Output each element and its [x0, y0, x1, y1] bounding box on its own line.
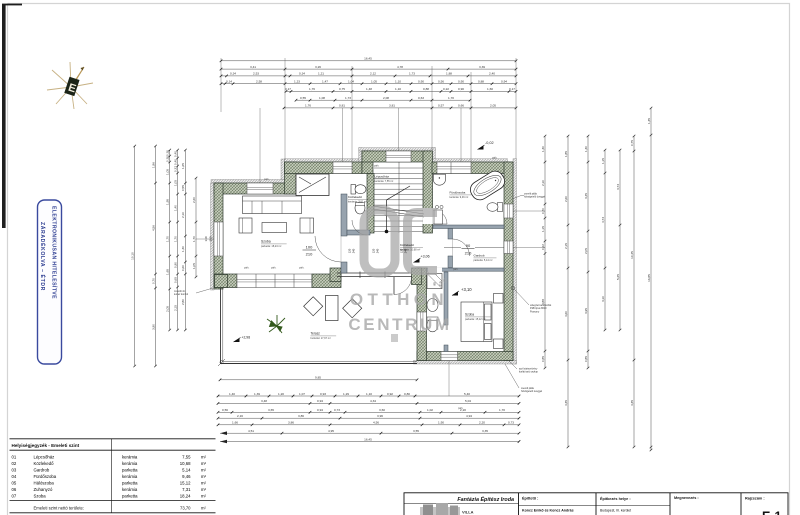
- svg-text:120: 120: [372, 248, 376, 253]
- svg-text:Hálószoba: Hálószoba: [34, 481, 55, 486]
- svg-text:16,85: 16,85: [647, 274, 651, 282]
- svg-text:1,86: 1,86: [151, 162, 155, 168]
- svg-text:0,85: 0,85: [541, 356, 545, 362]
- svg-text:CENTRUM: CENTRUM: [348, 315, 451, 334]
- svg-text:párk.: párk.: [492, 157, 498, 160]
- svg-text:0,40: 0,40: [173, 151, 177, 157]
- svg-text:0,94: 0,94: [317, 399, 323, 403]
- svg-text:1,76: 1,76: [309, 87, 315, 91]
- svg-text:1,05: 1,05: [192, 263, 196, 269]
- svg-text:1,60: 1,60: [487, 87, 493, 91]
- svg-text:4,95: 4,95: [328, 429, 334, 433]
- svg-text:2,15: 2,15: [173, 305, 177, 311]
- svg-text:2,53: 2,53: [253, 72, 259, 76]
- svg-text:m²: m²: [201, 487, 207, 492]
- svg-text:02: 02: [12, 461, 17, 466]
- svg-text:Terasz: Terasz: [311, 332, 321, 336]
- svg-text:párk.: párk.: [244, 267, 250, 270]
- svg-text:3,45: 3,45: [584, 193, 588, 199]
- svg-text:05: 05: [12, 481, 17, 486]
- svg-text:4,56: 4,56: [373, 421, 379, 425]
- svg-text:1,73: 1,73: [409, 72, 415, 76]
- svg-text:10,10: 10,10: [131, 252, 135, 260]
- svg-text:16,45: 16,45: [364, 57, 372, 61]
- svg-text:kerámia: kerámia: [122, 474, 138, 479]
- svg-text:+3,10: +3,10: [461, 287, 472, 292]
- svg-text:párk.: párk.: [374, 165, 380, 168]
- svg-text:2,20: 2,20: [192, 197, 196, 203]
- svg-text:Szoba: Szoba: [465, 313, 474, 317]
- svg-text:1,65: 1,65: [166, 269, 170, 275]
- svg-text:3,60: 3,60: [379, 408, 385, 412]
- svg-text:3,48: 3,48: [261, 399, 267, 403]
- svg-text:1,95: 1,95: [166, 199, 170, 205]
- svg-text:m²: m²: [201, 506, 206, 511]
- svg-text:m²: m²: [201, 467, 207, 472]
- svg-text:0,60: 0,60: [181, 265, 185, 271]
- svg-text:Emeleti szint nettó területe:: Emeleti szint nettó területe:: [34, 506, 85, 511]
- svg-text:1,40: 1,40: [229, 392, 235, 396]
- svg-text:Építtető :: Építtető :: [522, 495, 538, 500]
- svg-text:Helyiségjegyzék - Emeleti szin: Helyiségjegyzék - Emeleti szint: [12, 443, 80, 448]
- svg-text:Lépcsőház: Lépcsőház: [34, 454, 55, 459]
- svg-text:kerámia: kerámia: [122, 487, 138, 492]
- svg-text:1,05: 1,05: [371, 80, 377, 84]
- svg-text:1,04: 1,04: [348, 80, 354, 84]
- svg-text:0,65: 0,65: [173, 277, 177, 283]
- svg-text:OTTHON: OTTHON: [350, 290, 448, 309]
- svg-text:3,86: 3,86: [288, 421, 294, 425]
- svg-text:1,70: 1,70: [192, 236, 196, 242]
- svg-text:1,66: 1,66: [232, 421, 238, 425]
- svg-text:1,30: 1,30: [541, 146, 545, 152]
- svg-text:2,12: 2,12: [370, 72, 376, 76]
- svg-text:m²: m²: [201, 461, 207, 466]
- svg-text:10,68: 10,68: [180, 461, 191, 466]
- svg-text:2,58: 2,58: [256, 80, 262, 84]
- svg-text:0,57: 0,57: [438, 104, 444, 108]
- svg-text:5,25: 5,25: [616, 274, 620, 280]
- svg-text:Fürdőszoba: Fürdőszoba: [450, 191, 466, 195]
- svg-text:2,08: 2,08: [383, 96, 389, 100]
- svg-text:240: 240: [352, 248, 356, 253]
- svg-text:4,60: 4,60: [564, 311, 568, 317]
- svg-text:240: 240: [404, 248, 408, 253]
- svg-text:2,20: 2,20: [479, 421, 485, 425]
- svg-text:0,92: 0,92: [387, 392, 393, 396]
- svg-text:m²: m²: [201, 481, 207, 486]
- svg-text:párk.: párk.: [264, 178, 270, 181]
- svg-text:04: 04: [12, 474, 17, 479]
- svg-text:0,30: 0,30: [166, 156, 170, 162]
- svg-text:1,15: 1,15: [541, 226, 545, 232]
- svg-text:0,66: 0,66: [458, 104, 464, 108]
- svg-text:4,34: 4,34: [370, 399, 376, 403]
- svg-text:1,15: 1,15: [601, 158, 605, 164]
- svg-text:hőszigetelő üveggel: hőszigetelő üveggel: [524, 196, 546, 199]
- svg-text:Pozsony: Pozsony: [530, 310, 540, 313]
- svg-text:burkolat: 17,67 m²: burkolat: 17,67 m²: [311, 337, 331, 340]
- svg-text:1,05: 1,05: [166, 169, 170, 175]
- svg-text:07: 07: [12, 494, 17, 499]
- svg-text:®: ®: [443, 278, 448, 285]
- svg-text:Lépcsőház: Lépcsőház: [375, 175, 390, 179]
- svg-text:4,35: 4,35: [564, 400, 568, 406]
- svg-text:2,05: 2,05: [490, 104, 496, 108]
- svg-text:2,05: 2,05: [166, 306, 170, 312]
- svg-text:m²: m²: [201, 474, 207, 479]
- svg-text:E-1: E-1: [762, 510, 782, 515]
- svg-text:4,35: 4,35: [630, 400, 634, 406]
- svg-text:06: 06: [12, 487, 17, 492]
- svg-text:kerámia: 9,46 m²: kerámia: 9,46 m²: [450, 196, 469, 199]
- svg-text:parketta: parketta: [122, 481, 138, 486]
- svg-text:3,86: 3,86: [298, 414, 304, 418]
- svg-text:korlát tartó oszlop: korlát tartó oszlop: [519, 371, 539, 374]
- svg-text:parketta: 18,24 m²: parketta: 18,24 m²: [261, 245, 281, 248]
- svg-text:0,90: 0,90: [173, 262, 177, 268]
- svg-text:1,35: 1,35: [647, 118, 651, 124]
- svg-text:0,70: 0,70: [151, 278, 155, 284]
- svg-text:0,88: 0,88: [423, 87, 429, 91]
- svg-text:3,10: 3,10: [601, 296, 605, 302]
- svg-text:0,85: 0,85: [584, 356, 588, 362]
- svg-text:0,34: 0,34: [230, 72, 236, 76]
- svg-text:7,55: 7,55: [182, 454, 191, 459]
- svg-text:1,10: 1,10: [395, 80, 401, 84]
- svg-text:100: 100: [306, 245, 313, 250]
- svg-text:210: 210: [306, 252, 313, 257]
- svg-text:1,07: 1,07: [299, 392, 305, 396]
- svg-text:0,75: 0,75: [339, 87, 345, 91]
- svg-text:1,65: 1,65: [181, 163, 185, 169]
- svg-text:9,85: 9,85: [315, 376, 321, 380]
- svg-text:2,15: 2,15: [564, 243, 568, 249]
- svg-text:0,63: 0,63: [418, 96, 424, 100]
- svg-text:lemez konzol: lemez konzol: [174, 293, 188, 296]
- svg-text:2,80: 2,80: [181, 299, 185, 305]
- svg-text:0,17: 0,17: [509, 87, 515, 91]
- svg-text:1,48: 1,48: [366, 87, 372, 91]
- svg-text:01: 01: [12, 454, 17, 459]
- svg-text:90: 90: [466, 243, 471, 248]
- svg-text:0,37: 0,37: [173, 166, 177, 172]
- svg-text:3,39: 3,39: [479, 65, 485, 69]
- svg-text:4,51: 4,51: [248, 429, 254, 433]
- svg-text:0,62: 0,62: [541, 244, 545, 250]
- svg-text:parketta: parketta: [122, 467, 138, 472]
- svg-text:2,10: 2,10: [541, 180, 545, 186]
- svg-text:3,95: 3,95: [584, 308, 588, 314]
- svg-text:9,46: 9,46: [182, 474, 191, 479]
- svg-text:parketta: parketta: [122, 494, 138, 499]
- svg-text:4,56: 4,56: [151, 225, 155, 231]
- svg-text:120: 120: [400, 248, 404, 253]
- svg-text:1,02: 1,02: [427, 408, 433, 412]
- svg-text:5,04: 5,04: [465, 399, 471, 403]
- svg-text:0,70: 0,70: [541, 208, 545, 214]
- svg-text:1,10: 1,10: [395, 87, 401, 91]
- svg-text:03: 03: [12, 467, 17, 472]
- svg-text:210: 210: [465, 251, 472, 256]
- svg-text:Megnevezés :: Megnevezés :: [674, 496, 699, 500]
- svg-text:hőszigetelő üveggel: hőszigetelő üveggel: [521, 390, 543, 393]
- svg-text:1,30: 1,30: [584, 146, 588, 152]
- svg-text:120: 120: [348, 248, 352, 253]
- svg-text:240: 240: [376, 248, 380, 253]
- svg-text:3,96: 3,96: [377, 414, 383, 418]
- svg-text:kerámia: kerámia: [122, 454, 138, 459]
- svg-text:párk.: párk.: [453, 268, 459, 271]
- svg-text:210: 210: [439, 281, 443, 286]
- svg-text:1,76: 1,76: [305, 104, 311, 108]
- svg-text:1,08: 1,08: [319, 96, 325, 100]
- svg-text:2,16: 2,16: [237, 414, 243, 418]
- svg-text:+2,98: +2,98: [242, 336, 251, 340]
- svg-text:3,41: 3,41: [250, 65, 256, 69]
- svg-text:0,56: 0,56: [438, 80, 444, 84]
- svg-text:16,45: 16,45: [364, 437, 372, 441]
- svg-text:0,75: 0,75: [630, 140, 634, 146]
- svg-text:0,14: 0,14: [226, 80, 232, 84]
- svg-text:1,21: 1,21: [318, 72, 324, 76]
- svg-text:73,70: 73,70: [180, 506, 191, 511]
- svg-text:parketta: 5,14 m²: parketta: 5,14 m²: [474, 259, 493, 262]
- svg-text:Budapest, III. kerület: Budapest, III. kerület: [600, 509, 631, 513]
- svg-text:0,56: 0,56: [222, 408, 228, 412]
- svg-text:+3,06: +3,06: [421, 255, 430, 259]
- svg-text:Fantázia Építész Iroda: Fantázia Építész Iroda: [457, 495, 514, 503]
- svg-text:0,30: 0,30: [166, 150, 170, 156]
- svg-text:7,31: 7,31: [182, 487, 191, 492]
- svg-text:5,40: 5,40: [464, 392, 470, 396]
- svg-text:kerámia: 7,31 m²: kerámia: 7,31 m²: [348, 201, 367, 204]
- svg-text:0,22: 0,22: [443, 87, 449, 91]
- svg-text:m²: m²: [201, 454, 207, 459]
- svg-text:0,55: 0,55: [300, 96, 306, 100]
- svg-text:párk.: párk.: [271, 267, 277, 270]
- svg-text:1,10: 1,10: [366, 392, 372, 396]
- svg-text:0,73: 0,73: [334, 408, 340, 412]
- svg-text:1,23: 1,23: [294, 80, 300, 84]
- svg-text:4,94: 4,94: [466, 414, 472, 418]
- svg-text:2,40: 2,40: [489, 72, 495, 76]
- svg-text:3,90: 3,90: [151, 324, 155, 330]
- svg-text:0,34: 0,34: [299, 72, 305, 76]
- svg-text:3,65: 3,65: [268, 408, 274, 412]
- svg-text:Fürdőszoba: Fürdőszoba: [34, 474, 57, 479]
- svg-text:1,70: 1,70: [499, 408, 505, 412]
- svg-text:m²: m²: [201, 494, 207, 499]
- svg-text:1,30: 1,30: [181, 246, 185, 252]
- svg-text:2,05: 2,05: [584, 248, 588, 254]
- svg-text:3,81: 3,81: [389, 104, 395, 108]
- svg-text:Szoba: Szoba: [261, 240, 271, 244]
- svg-text:0,40: 0,40: [173, 159, 177, 165]
- svg-text:4,78: 4,78: [397, 65, 403, 69]
- svg-text:1,40: 1,40: [173, 205, 177, 211]
- svg-text:parketta: 15,12 m²: parketta: 15,12 m²: [465, 318, 485, 321]
- svg-text:0,55: 0,55: [181, 185, 185, 191]
- svg-text:2,20: 2,20: [460, 408, 466, 412]
- svg-text:0,93: 0,93: [320, 392, 326, 396]
- svg-text:1,70: 1,70: [448, 96, 454, 100]
- svg-text:18,24: 18,24: [180, 494, 191, 499]
- svg-text:ELEKTRONIKUSAN HITELESÍTVE: ELEKTRONIKUSAN HITELESÍTVE: [50, 206, 58, 299]
- svg-text:1,05: 1,05: [173, 180, 177, 186]
- svg-text:0,81: 0,81: [339, 104, 345, 108]
- svg-text:1,70: 1,70: [173, 236, 177, 242]
- svg-text:1,70: 1,70: [166, 236, 170, 242]
- svg-text:Közlekedő: Közlekedő: [348, 195, 362, 199]
- svg-text:1,20: 1,20: [278, 392, 284, 396]
- svg-text:3,35: 3,35: [482, 429, 488, 433]
- svg-text:90: 90: [433, 282, 437, 286]
- svg-text:Közlekedő: Közlekedő: [400, 243, 414, 247]
- svg-text:Koncz Enikő és Koncz András: Koncz Enikő és Koncz András: [522, 509, 574, 513]
- svg-text:0,73: 0,73: [508, 421, 514, 425]
- svg-text:0,88: 0,88: [478, 80, 484, 84]
- svg-text:VILLA: VILLA: [462, 510, 474, 515]
- svg-text:ZÁRADÉKOLVA – ÉTDR: ZÁRADÉKOLVA – ÉTDR: [39, 222, 47, 291]
- svg-text:1,73: 1,73: [345, 96, 351, 100]
- svg-text:4,73: 4,73: [601, 217, 605, 223]
- svg-text:3,55: 3,55: [413, 429, 419, 433]
- svg-text:15,12: 15,12: [180, 481, 191, 486]
- svg-text:1,90: 1,90: [438, 421, 444, 425]
- svg-text:2,60: 2,60: [564, 196, 568, 202]
- svg-text:3,73: 3,73: [616, 184, 620, 190]
- svg-text:Közlekedő: Közlekedő: [34, 461, 55, 466]
- svg-text:0,90: 0,90: [458, 80, 464, 84]
- svg-text:0,90: 0,90: [418, 80, 424, 84]
- svg-text:10,45: 10,45: [630, 251, 634, 259]
- svg-text:párk.: párk.: [299, 267, 305, 270]
- svg-text:Gardrob: Gardrob: [34, 467, 50, 472]
- svg-text:0,94: 0,94: [501, 80, 507, 84]
- svg-text:Gardrob: Gardrob: [474, 254, 485, 258]
- svg-text:0,94: 0,94: [317, 408, 323, 412]
- svg-text:1,29: 1,29: [343, 392, 349, 396]
- svg-text:-0,02: -0,02: [485, 141, 494, 145]
- svg-text:5,14: 5,14: [182, 467, 191, 472]
- svg-text:kerámia: 7,55 m²: kerámia: 7,55 m²: [375, 180, 394, 183]
- svg-text:Zuhanyzó: Zuhanyzó: [34, 487, 53, 492]
- svg-text:1,85: 1,85: [564, 151, 568, 157]
- svg-text:1,39: 1,39: [254, 392, 260, 396]
- svg-text:3,26: 3,26: [315, 65, 321, 69]
- svg-text:Szoba: Szoba: [34, 494, 47, 499]
- svg-text:2,10: 2,10: [181, 212, 185, 218]
- svg-text:0,90: 0,90: [458, 87, 464, 91]
- svg-text:0,80: 0,80: [404, 392, 410, 396]
- svg-text:0,17: 0,17: [285, 87, 291, 91]
- svg-text:1,88: 1,88: [446, 72, 452, 76]
- svg-text:1,47: 1,47: [322, 80, 328, 84]
- svg-text:kerámia: kerámia: [122, 461, 138, 466]
- svg-text:Rajzszám :: Rajzszám :: [745, 496, 765, 500]
- svg-text:Építkezés helye :: Építkezés helye :: [600, 496, 631, 501]
